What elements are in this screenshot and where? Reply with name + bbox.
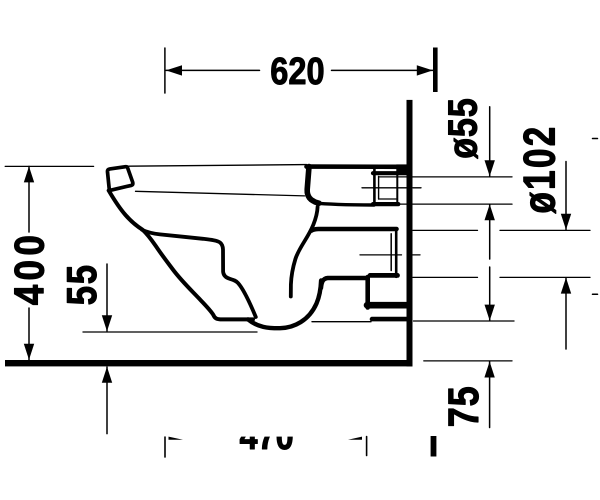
svg-text:55: 55 [59,263,106,305]
svg-text:400: 400 [7,231,54,305]
svg-text:75: 75 [440,385,488,427]
svg-text:ø55: ø55 [440,97,486,158]
svg-text:620: 620 [270,51,324,93]
svg-text:ø102: ø102 [516,125,565,214]
